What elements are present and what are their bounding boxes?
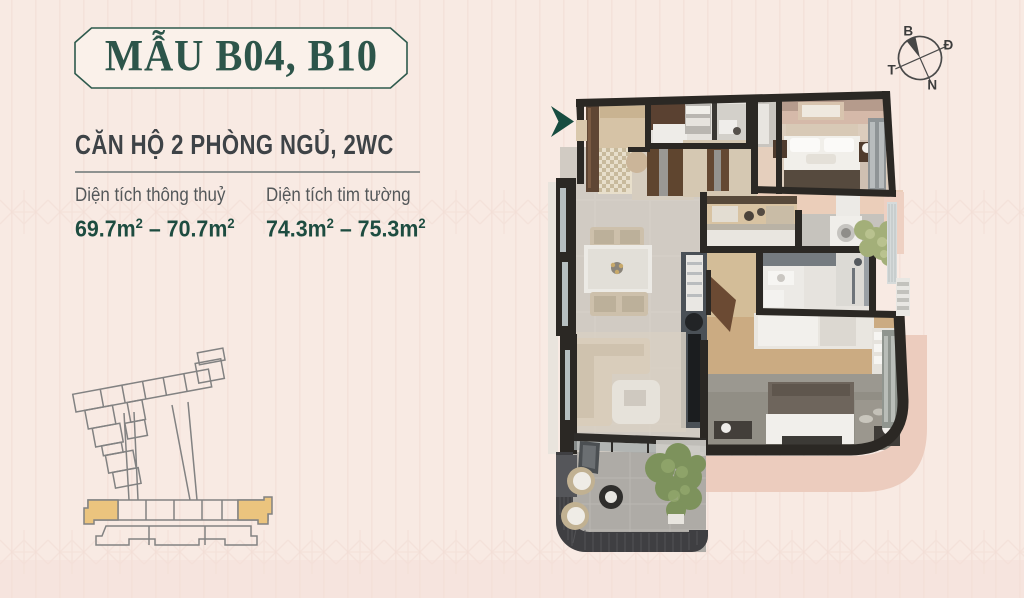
svg-text:Đ: Đ bbox=[943, 37, 953, 52]
svg-text:T: T bbox=[888, 63, 897, 78]
svg-text:B: B bbox=[903, 24, 913, 39]
svg-text:N: N bbox=[927, 77, 937, 92]
